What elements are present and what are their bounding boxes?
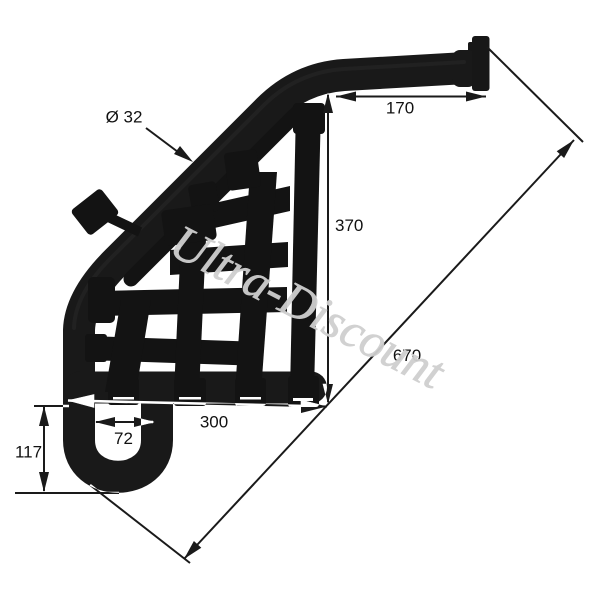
svg-text:Ø 32: Ø 32: [106, 108, 143, 127]
svg-text:300: 300: [200, 413, 228, 432]
svg-text:72: 72: [114, 429, 133, 448]
svg-text:170: 170: [386, 99, 414, 118]
svg-text:370: 370: [335, 216, 363, 235]
svg-text:117: 117: [15, 443, 42, 462]
